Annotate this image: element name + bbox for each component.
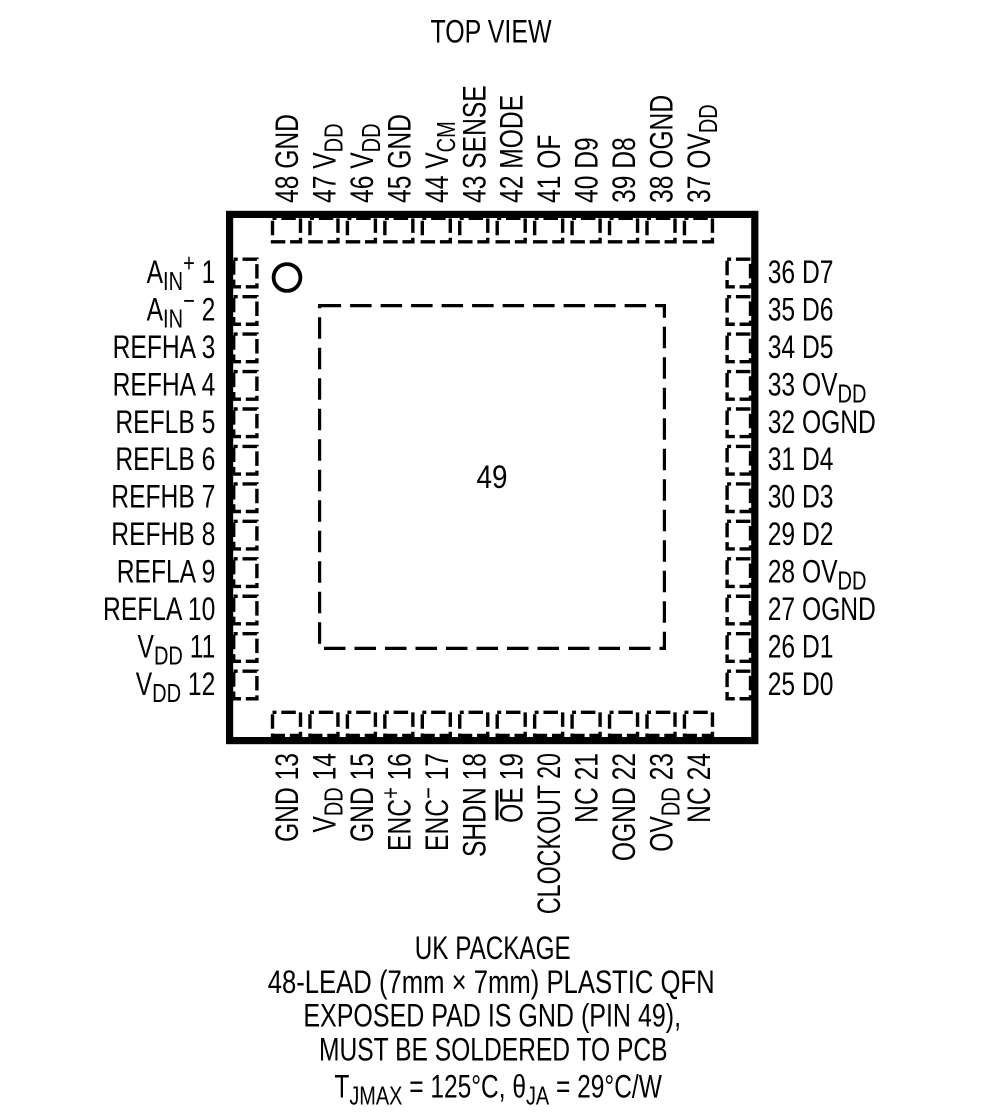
svg-text:REFLA 10: REFLA 10	[103, 592, 215, 628]
svg-text:33 OVDD​: 33 OVDD​	[768, 367, 867, 408]
svg-text:REFHA 3: REFHA 3	[113, 330, 216, 366]
svg-text:48-LEAD (7mm × 7mm) PLASTIC QF: 48-LEAD (7mm × 7mm) PLASTIC QFN	[268, 965, 715, 1000]
svg-text:CLOCKOUT 20: CLOCKOUT 20	[532, 753, 567, 914]
svg-text:42 MODE: 42 MODE	[495, 95, 531, 203]
svg-text:AIN​+​ 1: AIN​+​ 1	[147, 248, 216, 295]
svg-text:41 OF: 41 OF	[532, 135, 568, 203]
svg-text:34 D5: 34 D5	[768, 330, 834, 366]
svg-text:35 D6: 35 D6	[768, 292, 834, 328]
svg-text:EXPOSED PAD IS GND (PIN 49),: EXPOSED PAD IS GND (PIN 49),	[303, 999, 681, 1035]
svg-text:NC 21: NC 21	[570, 753, 606, 823]
svg-text:28 OVDD​: 28 OVDD​	[768, 555, 867, 596]
svg-text:TOP VIEW: TOP VIEW	[430, 15, 551, 51]
svg-text:TJMAX​ = 125°C, θJA​ = 29°C/W: TJMAX​ = 125°C, θJA​ = 29°C/W	[334, 1069, 662, 1110]
svg-text:39 D8: 39 D8	[607, 137, 643, 203]
svg-text:REFHB 7: REFHB 7	[111, 480, 215, 516]
svg-text:44 VCM​: 44 VCM​	[420, 121, 461, 203]
svg-text:UK PACKAGE: UK PACKAGE	[415, 931, 571, 967]
svg-text:25 D0: 25 D0	[768, 667, 834, 703]
svg-text:36 D7: 36 D7	[768, 255, 834, 291]
svg-text:OE 19: OE 19	[495, 753, 531, 823]
svg-text:26 D1: 26 D1	[768, 629, 834, 665]
svg-text:OGND 22: OGND 22	[607, 753, 643, 861]
svg-text:31 D4: 31 D4	[768, 442, 834, 478]
svg-text:GND 13: GND 13	[270, 753, 306, 842]
svg-text:45 GND: 45 GND	[382, 114, 418, 203]
svg-text:46 VDD​: 46 VDD​	[345, 123, 386, 203]
svg-text:49: 49	[477, 460, 508, 495]
svg-text:ENC−​ 17: ENC−​ 17	[413, 753, 455, 851]
svg-text:40 D9: 40 D9	[570, 137, 606, 203]
svg-text:37 OVDD​: 37 OVDD​	[682, 104, 723, 203]
svg-text:29 D2: 29 D2	[768, 517, 834, 553]
svg-text:43 SENSE: 43 SENSE	[457, 85, 493, 203]
svg-text:VDD​ 14: VDD​ 14	[307, 753, 348, 833]
svg-text:48 GND: 48 GND	[270, 114, 306, 203]
svg-text:VDD​ 11: VDD​ 11	[138, 629, 216, 670]
svg-text:REFLB 5: REFLB 5	[115, 405, 215, 441]
svg-text:REFLA 9: REFLA 9	[117, 555, 216, 591]
svg-text:ENC+​ 16: ENC+​ 16	[376, 753, 418, 851]
svg-text:32 OGND: 32 OGND	[768, 405, 876, 441]
svg-text:REFHB 8: REFHB 8	[111, 517, 215, 553]
svg-text:VDD​ 12: VDD​ 12	[136, 667, 216, 708]
svg-text:30 D3: 30 D3	[768, 480, 834, 516]
svg-text:NC 24: NC 24	[682, 753, 718, 823]
svg-text:SHDN 18: SHDN 18	[457, 753, 493, 857]
svg-text:REFHA 4: REFHA 4	[113, 367, 216, 403]
svg-text:47 VDD​: 47 VDD​	[307, 123, 348, 203]
svg-text:38 OGND: 38 OGND	[644, 95, 680, 203]
svg-text:27 OGND: 27 OGND	[768, 592, 876, 628]
svg-text:MUST BE SOLDERED TO PCB: MUST BE SOLDERED TO PCB	[319, 1032, 668, 1068]
svg-text:OVDD​ 23: OVDD​ 23	[644, 753, 685, 852]
svg-text:REFLB 6: REFLB 6	[115, 442, 215, 478]
